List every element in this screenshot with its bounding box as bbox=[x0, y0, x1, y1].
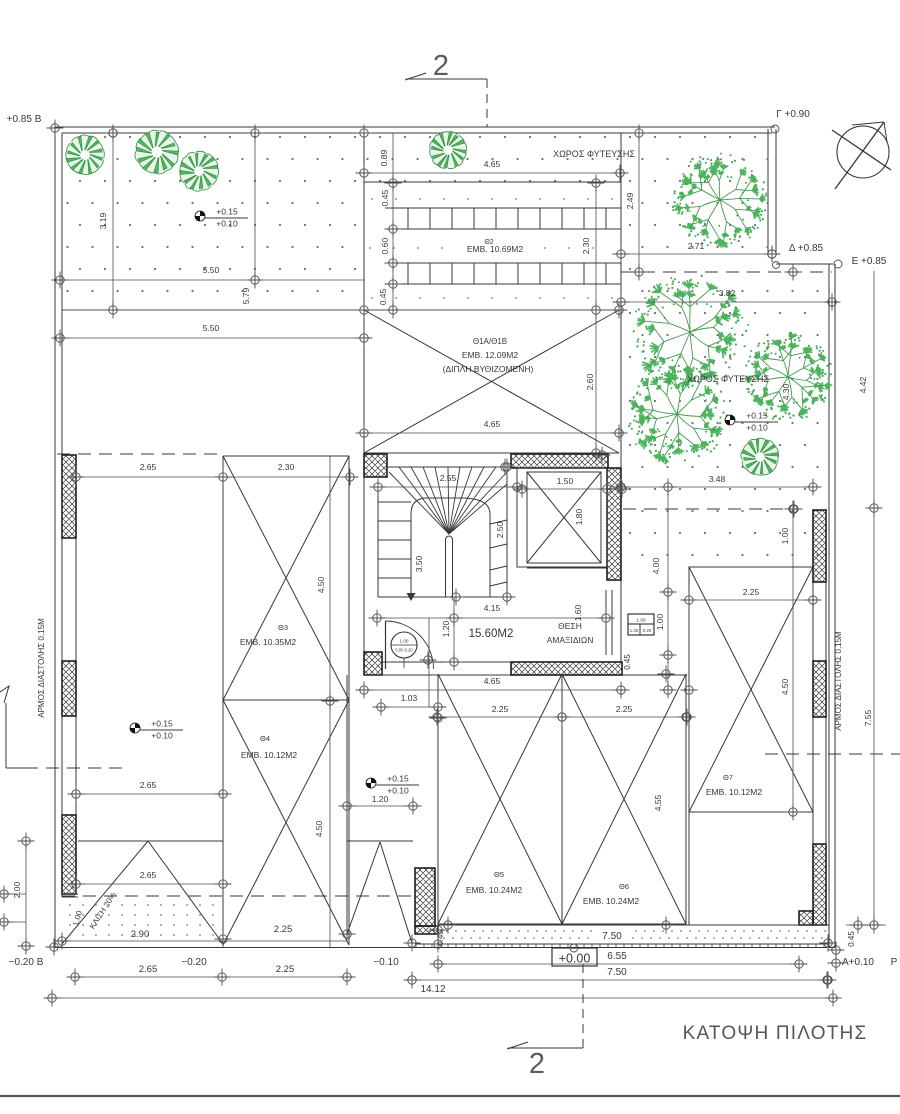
svg-text:Γ +0.90: Γ +0.90 bbox=[776, 109, 810, 120]
svg-text:+0.10: +0.10 bbox=[746, 423, 768, 433]
svg-text:2.71: 2.71 bbox=[688, 241, 705, 251]
svg-text:Θ5: Θ5 bbox=[494, 870, 504, 879]
svg-text:1.20: 1.20 bbox=[441, 620, 451, 637]
svg-text:4.50: 4.50 bbox=[316, 576, 326, 593]
svg-text:ΕΜΒ. 12.09Μ2: ΕΜΒ. 12.09Μ2 bbox=[462, 350, 518, 360]
svg-text:1.80: 1.80 bbox=[574, 508, 584, 525]
svg-text:6.55: 6.55 bbox=[607, 951, 627, 962]
svg-text:2.25: 2.25 bbox=[492, 704, 509, 714]
svg-text:Θ6: Θ6 bbox=[619, 882, 629, 891]
svg-text:−0.20: −0.20 bbox=[181, 957, 207, 968]
svg-text:ΕΜΒ. 10.35Μ2: ΕΜΒ. 10.35Μ2 bbox=[240, 637, 296, 647]
svg-text:2.65: 2.65 bbox=[140, 870, 157, 880]
svg-text:+0.85 Β: +0.85 Β bbox=[7, 114, 42, 125]
svg-text:ΑΡΜΟΣ ΔΙΑΣΤΟΛΗΣ 0,15Μ: ΑΡΜΟΣ ΔΙΑΣΤΟΛΗΣ 0,15Μ bbox=[37, 618, 46, 718]
svg-text:2.55: 2.55 bbox=[440, 473, 457, 483]
svg-text:Θ4: Θ4 bbox=[260, 734, 270, 743]
svg-text:2.60: 2.60 bbox=[585, 373, 595, 390]
svg-text:ΚΛΙΣΗ 20%: ΚΛΙΣΗ 20% bbox=[88, 891, 118, 931]
svg-text:Ρ: Ρ bbox=[891, 957, 898, 968]
svg-text:5.79: 5.79 bbox=[241, 287, 251, 304]
svg-text:ΑΡΜΟΣ ΔΙΑΣΤΟΛΗΣ 0,15Μ: ΑΡΜΟΣ ΔΙΑΣΤΟΛΗΣ 0,15Μ bbox=[834, 631, 843, 731]
svg-text:1.00: 1.00 bbox=[71, 909, 84, 927]
svg-text:4.50: 4.50 bbox=[780, 678, 790, 695]
svg-text:+0.10: +0.10 bbox=[387, 786, 409, 796]
svg-text:3.82: 3.82 bbox=[719, 288, 736, 298]
svg-text:5.50: 5.50 bbox=[203, 323, 220, 333]
svg-text:3.50: 3.50 bbox=[414, 555, 424, 572]
svg-text:4.65: 4.65 bbox=[484, 676, 501, 686]
svg-text:2.30: 2.30 bbox=[581, 237, 591, 254]
svg-text:+0.10: +0.10 bbox=[151, 731, 173, 741]
svg-text:1.40: 1.40 bbox=[630, 628, 639, 633]
svg-text:ΕΜΒ. 10.12Μ2: ΕΜΒ. 10.12Μ2 bbox=[241, 750, 297, 760]
svg-text:0.45: 0.45 bbox=[623, 654, 632, 670]
svg-text:1.00: 1.00 bbox=[636, 618, 646, 624]
svg-text:4.00: 4.00 bbox=[651, 557, 661, 574]
svg-text:0.45: 0.45 bbox=[380, 189, 390, 206]
svg-text:0.20: 0.20 bbox=[643, 628, 652, 633]
svg-text:Θ1Α/Θ1Β: Θ1Α/Θ1Β bbox=[473, 337, 507, 346]
svg-text:7.50: 7.50 bbox=[607, 967, 627, 978]
svg-text:4.42: 4.42 bbox=[858, 376, 868, 393]
svg-text:15.60Μ2: 15.60Μ2 bbox=[469, 628, 514, 640]
svg-text:ΧΩΡΟΣ ΦΥΤΕΥΣΗΣ: ΧΩΡΟΣ ΦΥΤΕΥΣΗΣ bbox=[687, 374, 769, 384]
svg-text:5.50: 5.50 bbox=[203, 265, 220, 275]
svg-text:0.45: 0.45 bbox=[436, 930, 445, 946]
svg-text:4.55: 4.55 bbox=[653, 794, 663, 811]
svg-text:0.45: 0.45 bbox=[378, 288, 388, 305]
svg-text:1.00: 1.00 bbox=[400, 639, 409, 644]
svg-text:1.60: 1.60 bbox=[573, 604, 583, 621]
svg-text:2.65: 2.65 bbox=[140, 462, 157, 472]
svg-text:−0.20 Β: −0.20 Β bbox=[9, 957, 44, 968]
svg-text:+0.00: +0.00 bbox=[559, 952, 591, 966]
svg-text:4.50: 4.50 bbox=[314, 820, 324, 837]
svg-text:4.65: 4.65 bbox=[484, 419, 501, 429]
svg-text:ΕΜΒ. 10.69Μ2: ΕΜΒ. 10.69Μ2 bbox=[467, 244, 523, 254]
svg-text:−0.10: −0.10 bbox=[373, 957, 399, 968]
svg-text:+0.15: +0.15 bbox=[216, 207, 238, 217]
svg-text:2.50: 2.50 bbox=[495, 521, 505, 538]
svg-text:2.90: 2.90 bbox=[131, 929, 150, 940]
svg-text:4.65: 4.65 bbox=[484, 159, 501, 169]
svg-text:0.89: 0.89 bbox=[379, 149, 389, 166]
svg-text:4.30: 4.30 bbox=[781, 383, 791, 400]
svg-text:2: 2 bbox=[433, 50, 449, 82]
svg-text:1.00: 1.00 bbox=[655, 613, 665, 630]
svg-text:ΕΜΒ. 10.24Μ2: ΕΜΒ. 10.24Μ2 bbox=[466, 885, 522, 895]
svg-text:ΧΩΡΟΣ ΦΥΤΕΥΣΗΣ: ΧΩΡΟΣ ΦΥΤΕΥΣΗΣ bbox=[553, 149, 635, 159]
svg-text:+0.10: +0.10 bbox=[216, 219, 238, 229]
svg-text:2.65: 2.65 bbox=[139, 964, 158, 975]
svg-text:ΕΜΒ. 10.12Μ2: ΕΜΒ. 10.12Μ2 bbox=[706, 787, 762, 797]
svg-text:Θ3: Θ3 bbox=[278, 623, 288, 632]
svg-text:2: 2 bbox=[529, 1048, 545, 1080]
svg-text:Θ7: Θ7 bbox=[723, 773, 733, 782]
svg-text:14.12: 14.12 bbox=[420, 984, 445, 995]
svg-text:Δ +0.85: Δ +0.85 bbox=[789, 243, 824, 254]
svg-text:0.00 0.20: 0.00 0.20 bbox=[395, 648, 413, 653]
svg-text:2.25: 2.25 bbox=[743, 587, 760, 597]
svg-text:2.65: 2.65 bbox=[140, 780, 157, 790]
svg-text:2.00: 2.00 bbox=[12, 881, 22, 898]
svg-text:ΚΑΤΟΨΗ ΠΙΛΟΤΗΣ: ΚΑΤΟΨΗ ΠΙΛΟΤΗΣ bbox=[683, 1023, 868, 1044]
svg-text:1.03: 1.03 bbox=[401, 693, 418, 703]
svg-text:1.20: 1.20 bbox=[372, 794, 389, 804]
svg-text:Ε +0.85: Ε +0.85 bbox=[852, 256, 887, 267]
svg-text:1.00: 1.00 bbox=[780, 527, 790, 544]
svg-text:ΘΕΣΗ: ΘΕΣΗ bbox=[558, 621, 582, 631]
svg-text:7.55: 7.55 bbox=[863, 709, 873, 726]
svg-text:2.25: 2.25 bbox=[274, 924, 293, 935]
svg-text:7.50: 7.50 bbox=[602, 931, 622, 942]
svg-text:4.15: 4.15 bbox=[484, 603, 501, 613]
svg-text:ΑΜΑΞΙΔΙΩΝ: ΑΜΑΞΙΔΙΩΝ bbox=[547, 635, 594, 645]
svg-text:A+0.10: A+0.10 bbox=[842, 957, 874, 968]
svg-text:0.60: 0.60 bbox=[380, 237, 390, 254]
svg-text:2.30: 2.30 bbox=[278, 462, 295, 472]
svg-text:+0.15: +0.15 bbox=[387, 774, 409, 784]
svg-text:2.25: 2.25 bbox=[276, 964, 295, 975]
svg-text:3.48: 3.48 bbox=[709, 474, 726, 484]
svg-text:2.25: 2.25 bbox=[616, 704, 633, 714]
svg-text:3.19: 3.19 bbox=[98, 212, 108, 229]
svg-text:+0.15: +0.15 bbox=[746, 411, 768, 421]
svg-text:1.50: 1.50 bbox=[557, 476, 574, 486]
svg-text:0.45: 0.45 bbox=[847, 931, 856, 947]
svg-text:(ΔΙΠΛΗ ΒΥΘΙΖΟΜΕΝΗ): (ΔΙΠΛΗ ΒΥΘΙΖΟΜΕΝΗ) bbox=[443, 364, 534, 374]
svg-text:ΕΜΒ. 10.24Μ2: ΕΜΒ. 10.24Μ2 bbox=[583, 896, 639, 906]
svg-text:2.49: 2.49 bbox=[625, 192, 635, 209]
svg-text:+0.15: +0.15 bbox=[151, 719, 173, 729]
